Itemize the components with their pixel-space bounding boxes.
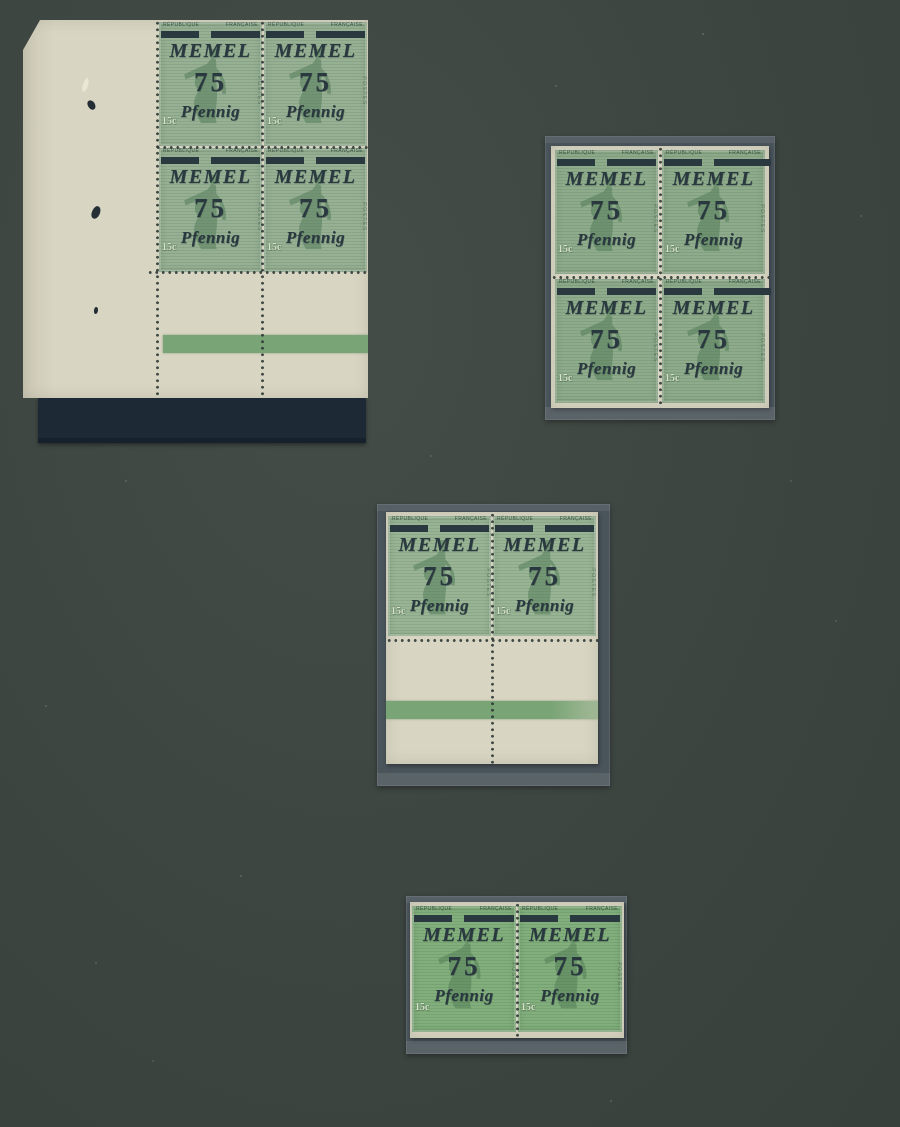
stamp: RÉPUBLIQUE FRANÇAISE MEMEL 75 Pfennig 15… (555, 150, 658, 274)
stamp-top-inscription: RÉPUBLIQUE FRANÇAISE (497, 517, 592, 522)
overprint-bar-right-icon (316, 31, 365, 38)
denomination-label: 15c (267, 117, 281, 127)
denomination-label: 15c (391, 607, 405, 617)
selvage-paper: RÉPUBLIQUE FRANÇAISE MEMEL 75 Pfennig 15… (23, 20, 368, 398)
selvage-ink-mark (90, 205, 103, 220)
overprint-bar-left-icon (390, 525, 428, 532)
stamp: RÉPUBLIQUE FRANÇAISE MEMEL 75 Pfennig 15… (518, 906, 622, 1032)
stamp-top-inscription: RÉPUBLIQUE FRANÇAISE (666, 151, 761, 156)
side-inscription: POSTES (361, 77, 366, 106)
overprint-value: 75 (662, 326, 765, 353)
selvage-ink-mark (86, 99, 97, 111)
overprint-value: 75 (264, 195, 367, 222)
stamp: RÉPUBLIQUE FRANÇAISE MEMEL 75 Pfennig 15… (412, 906, 516, 1032)
overprint-memel: MEMEL (264, 167, 367, 187)
country-word-left: RÉPUBLIQUE (559, 151, 595, 156)
country-word-right: FRANÇAISE (729, 280, 761, 285)
stamp-top-inscription: RÉPUBLIQUE FRANÇAISE (268, 23, 363, 28)
country-word-left: RÉPUBLIQUE (522, 907, 558, 912)
stamp: RÉPUBLIQUE FRANÇAISE MEMEL 75 Pfennig 15… (264, 148, 367, 272)
side-inscription: POSTES (590, 569, 595, 598)
paper-dust-speckles (0, 0, 2, 2)
country-word-left: RÉPUBLIQUE (559, 280, 595, 285)
side-inscription: POSTES (652, 334, 657, 363)
country-word-right: FRANÇAISE (480, 907, 512, 912)
stamp: RÉPUBLIQUE FRANÇAISE MEMEL 75 Pfennig 15… (493, 516, 596, 636)
stamp-top-inscription: RÉPUBLIQUE FRANÇAISE (416, 907, 512, 912)
country-word-left: RÉPUBLIQUE (666, 151, 702, 156)
overprint-bar-right-icon (545, 525, 594, 532)
stamp-top-inscription: RÉPUBLIQUE FRANÇAISE (559, 280, 654, 285)
stamp-paper: RÉPUBLIQUE FRANÇAISE MEMEL 75 Pfennig 15… (551, 146, 769, 408)
stamp-mount: RÉPUBLIQUE FRANÇAISE MEMEL 75 Pfennig 15… (377, 504, 610, 786)
country-word-left: RÉPUBLIQUE (268, 23, 304, 28)
stamp-top-inscription: RÉPUBLIQUE FRANÇAISE (392, 517, 487, 522)
perforation-line (155, 20, 160, 398)
overprint-bar-left-icon (266, 157, 304, 164)
selvage-ink-mark (93, 307, 98, 315)
country-word-left: RÉPUBLIQUE (416, 907, 452, 912)
overprint-bar-right-icon (464, 915, 514, 922)
country-word-right: FRANÇAISE (729, 151, 761, 156)
overprint-value: 75 (493, 563, 596, 590)
perforation-line (147, 270, 368, 275)
stamp-mount: RÉPUBLIQUE FRANÇAISE MEMEL 75 Pfennig 15… (545, 136, 775, 420)
side-inscription: POSTES (652, 205, 657, 234)
country-word-right: FRANÇAISE (560, 517, 592, 522)
country-word-right: FRANÇAISE (455, 517, 487, 522)
overprint-memel: MEMEL (518, 925, 622, 945)
stamp-mount: RÉPUBLIQUE FRANÇAISE MEMEL 75 Pfennig 15… (406, 896, 627, 1054)
overprint-bar-right-icon (714, 159, 772, 166)
country-word-right: FRANÇAISE (586, 907, 618, 912)
pair-with-bottom-gutter: RÉPUBLIQUE FRANÇAISE MEMEL 75 Pfennig 15… (377, 504, 610, 786)
overprint-memel: MEMEL (159, 167, 262, 187)
overprint-bar-left-icon (161, 31, 199, 38)
denomination-label: 15c (415, 1003, 429, 1013)
block-of-four: RÉPUBLIQUE FRANÇAISE MEMEL 75 Pfennig 15… (545, 136, 775, 420)
country-word-left: RÉPUBLIQUE (163, 23, 199, 28)
plate-color-band (163, 335, 368, 353)
overprint-value: 75 (159, 195, 262, 222)
denomination-label: 15c (665, 245, 679, 255)
horizontal-pair: RÉPUBLIQUE FRANÇAISE MEMEL 75 Pfennig 15… (406, 896, 627, 1054)
stamp: RÉPUBLIQUE FRANÇAISE MEMEL 75 Pfennig 15… (555, 279, 658, 403)
overprint-bar-left-icon (557, 288, 595, 295)
stamp: RÉPUBLIQUE FRANÇAISE MEMEL 75 Pfennig 15… (662, 150, 765, 274)
denomination-label: 15c (521, 1003, 535, 1013)
overprint-bar-right-icon (714, 288, 772, 295)
corner-block-of-four: RÉPUBLIQUE FRANÇAISE MEMEL 75 Pfennig 15… (23, 20, 368, 438)
stamp-top-inscription: RÉPUBLIQUE FRANÇAISE (666, 280, 761, 285)
stamp-top-inscription: RÉPUBLIQUE FRANÇAISE (163, 23, 258, 28)
overprint-bar-left-icon (161, 157, 199, 164)
denomination-label: 15c (267, 243, 281, 253)
paper-nick-mark (81, 78, 90, 93)
overprint-bar-left-icon (664, 159, 702, 166)
overprint-memel: MEMEL (412, 925, 516, 945)
stamp: RÉPUBLIQUE FRANÇAISE MEMEL 75 Pfennig 15… (159, 22, 262, 146)
overprint-memel: MEMEL (662, 169, 765, 189)
overprint-memel: MEMEL (159, 41, 262, 61)
overprint-value: 75 (159, 69, 262, 96)
overprint-bar-left-icon (495, 525, 533, 532)
perforation-line (260, 20, 265, 398)
overprint-value: 75 (264, 69, 367, 96)
stamp: RÉPUBLIQUE FRANÇAISE MEMEL 75 Pfennig 15… (662, 279, 765, 403)
perforation-line (155, 145, 368, 150)
overprint-memel: MEMEL (493, 535, 596, 555)
country-word-right: FRANÇAISE (622, 280, 654, 285)
overprint-bar-left-icon (266, 31, 304, 38)
overprint-bar-right-icon (570, 915, 620, 922)
stamp-paper: RÉPUBLIQUE FRANÇAISE MEMEL 75 Pfennig 15… (386, 512, 598, 764)
side-inscription: POSTES (361, 203, 366, 232)
overprint-bar-right-icon (211, 31, 260, 38)
overprint-bar-right-icon (211, 157, 260, 164)
overprint-value: 75 (518, 953, 622, 980)
stamp: RÉPUBLIQUE FRANÇAISE MEMEL 75 Pfennig 15… (159, 148, 262, 272)
overprint-bar-left-icon (520, 915, 558, 922)
overprint-value: 75 (662, 197, 765, 224)
album-page: RÉPUBLIQUE FRANÇAISE MEMEL 75 Pfennig 15… (0, 0, 900, 1127)
overprint-value: 75 (555, 197, 658, 224)
country-word-left: RÉPUBLIQUE (666, 280, 702, 285)
denomination-label: 15c (162, 243, 176, 253)
overprint-bar-right-icon (607, 159, 656, 166)
country-word-left: RÉPUBLIQUE (497, 517, 533, 522)
side-inscription: POSTES (616, 962, 621, 991)
denomination-label: 15c (558, 374, 572, 384)
stamp-paper: RÉPUBLIQUE FRANÇAISE MEMEL 75 Pfennig 15… (410, 902, 624, 1038)
overprint-memel: MEMEL (555, 298, 658, 318)
overprint-memel: MEMEL (662, 298, 765, 318)
country-word-right: FRANÇAISE (622, 151, 654, 156)
perforation-line (386, 638, 598, 643)
stamp: RÉPUBLIQUE FRANÇAISE MEMEL 75 Pfennig 15… (264, 22, 367, 146)
overprint-value: 75 (388, 563, 491, 590)
country-word-right: FRANÇAISE (226, 23, 258, 28)
overprint-bar-right-icon (440, 525, 489, 532)
dark-mount-strip (38, 397, 366, 443)
country-word-right: FRANÇAISE (331, 23, 363, 28)
overprint-value: 75 (412, 953, 516, 980)
stamp: RÉPUBLIQUE FRANÇAISE MEMEL 75 Pfennig 15… (388, 516, 491, 636)
overprint-bar-right-icon (316, 157, 365, 164)
side-inscription: POSTES (759, 334, 764, 363)
stamp-top-inscription: RÉPUBLIQUE FRANÇAISE (522, 907, 618, 912)
perforation-line (515, 902, 520, 1038)
overprint-memel: MEMEL (388, 535, 491, 555)
country-word-left: RÉPUBLIQUE (392, 517, 428, 522)
overprint-bar-left-icon (557, 159, 595, 166)
overprint-memel: MEMEL (264, 41, 367, 61)
overprint-value: 75 (555, 326, 658, 353)
overprint-bar-right-icon (607, 288, 656, 295)
perforation-line (551, 275, 769, 280)
stamp-top-inscription: RÉPUBLIQUE FRANÇAISE (559, 151, 654, 156)
denomination-label: 15c (558, 245, 572, 255)
overprint-memel: MEMEL (555, 169, 658, 189)
denomination-label: 15c (162, 117, 176, 127)
denomination-label: 15c (496, 607, 510, 617)
overprint-bar-left-icon (414, 915, 452, 922)
side-inscription: POSTES (759, 205, 764, 234)
overprint-bar-left-icon (664, 288, 702, 295)
denomination-label: 15c (665, 374, 679, 384)
